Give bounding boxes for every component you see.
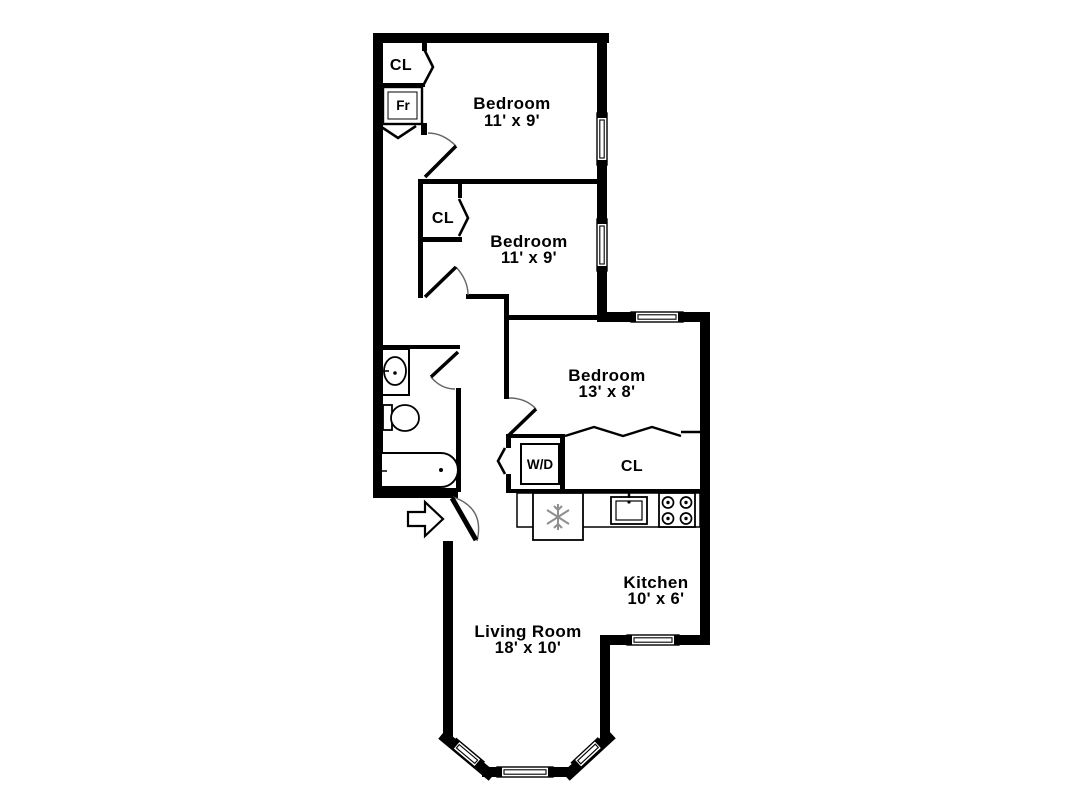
svg-text:Bedroom: Bedroom bbox=[473, 94, 550, 113]
window-icon bbox=[497, 767, 553, 777]
room-label-bedroom3: Bedroom 13' x 8' bbox=[568, 366, 645, 401]
closet-label-bedroom1: CL bbox=[390, 57, 412, 74]
accordion-door-icon bbox=[565, 427, 702, 436]
toilet-icon bbox=[383, 405, 419, 431]
door-swing-icon bbox=[425, 133, 456, 177]
bifold-door-icon bbox=[424, 49, 433, 84]
window-icon bbox=[571, 738, 604, 770]
svg-text:13' x 8': 13' x 8' bbox=[579, 383, 636, 401]
refrigerator-icon bbox=[533, 493, 583, 540]
bathroom-sink-icon bbox=[382, 349, 409, 395]
svg-text:11' x 9': 11' x 9' bbox=[501, 249, 557, 267]
door-swing-icon bbox=[425, 267, 468, 297]
room-label-bedroom1: Bedroom 11' x 9' bbox=[473, 94, 550, 130]
window-icon bbox=[597, 113, 607, 165]
entry-door-icon bbox=[452, 497, 479, 541]
room-labels: Bedroom 11' x 9' Bedroom 11' x 9' Bedroo… bbox=[390, 57, 689, 657]
svg-text:11' x 9': 11' x 9' bbox=[484, 112, 540, 130]
fr-label: Fr bbox=[396, 98, 410, 113]
svg-text:10' x 6': 10' x 6' bbox=[628, 590, 685, 608]
svg-text:18' x 10': 18' x 10' bbox=[495, 639, 562, 657]
bathtub-icon bbox=[381, 453, 458, 487]
door-swing-icon bbox=[508, 398, 536, 436]
windows bbox=[450, 113, 683, 777]
room-label-living-room: Living Room 18' x 10' bbox=[474, 622, 581, 657]
bathroom-fixtures bbox=[381, 349, 458, 487]
exterior-walls bbox=[373, 33, 710, 777]
floor-plan-page: Bedroom 11' x 9' Bedroom 11' x 9' Bedroo… bbox=[0, 0, 1080, 810]
bifold-door-icon bbox=[459, 199, 468, 236]
door-swing-icon bbox=[431, 352, 458, 389]
stove-icon bbox=[659, 493, 695, 527]
kitchen-sink-icon bbox=[611, 493, 647, 524]
room-label-kitchen: Kitchen 10' x 6' bbox=[623, 573, 688, 608]
floor-plan: Bedroom 11' x 9' Bedroom 11' x 9' Bedroo… bbox=[0, 0, 1080, 810]
room-label-bedroom2: Bedroom 11' x 9' bbox=[490, 232, 567, 267]
window-icon bbox=[631, 312, 683, 322]
closet-label-bedroom2: CL bbox=[432, 210, 454, 227]
closet-label-kitchen: CL bbox=[621, 458, 643, 475]
window-icon bbox=[450, 739, 484, 770]
washer-dryer-label: W/D bbox=[527, 457, 553, 472]
window-icon bbox=[597, 219, 607, 271]
entry-arrow-icon bbox=[408, 502, 443, 536]
window-icon bbox=[627, 635, 679, 645]
bifold-door-icon bbox=[498, 448, 505, 474]
bifold-door-icon bbox=[380, 126, 416, 138]
